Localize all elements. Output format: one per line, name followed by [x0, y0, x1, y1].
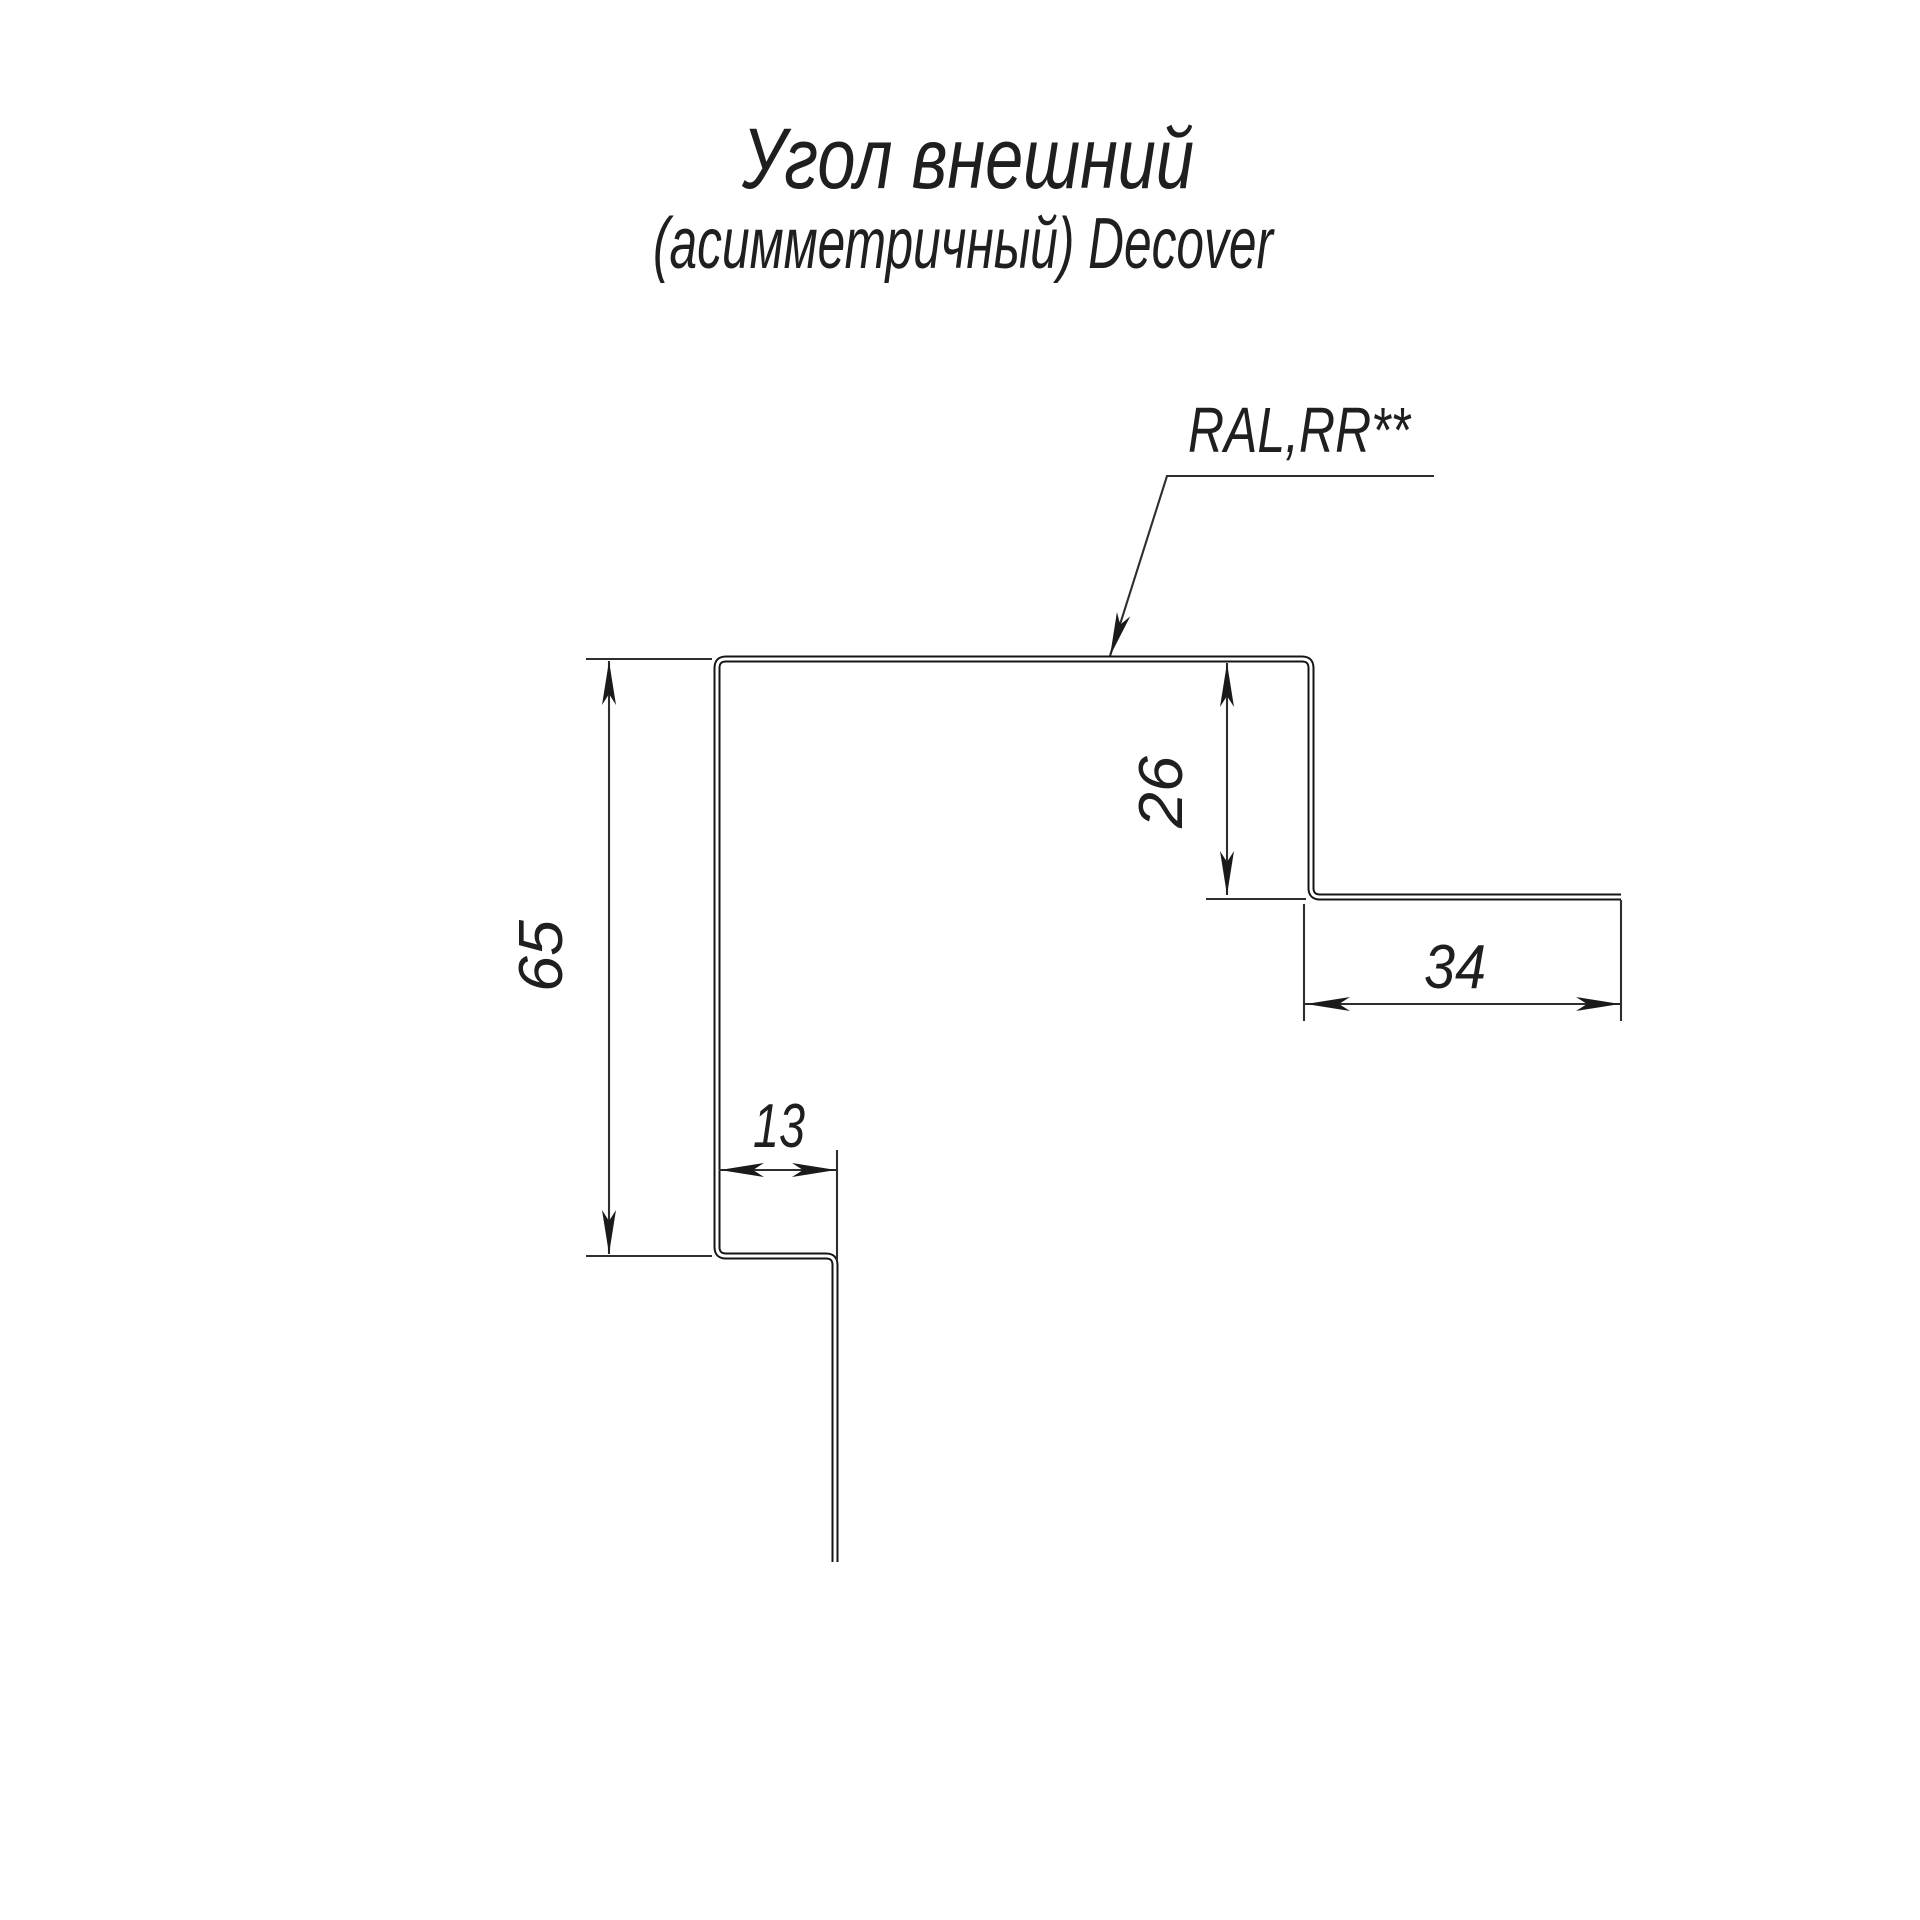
material-label: RAL,RR** [1188, 394, 1412, 466]
drawing-canvas: 65 13 26 34 [0, 0, 1920, 1920]
dimension-right-flange: 34 [1304, 900, 1621, 1021]
dimension-value-65: 65 [507, 919, 576, 992]
title-line-1: Угол внешний [741, 111, 1194, 207]
drawing-title: Угол внешний (асимметричный) Decover [653, 111, 1275, 284]
leader-line [1110, 476, 1434, 656]
title-line-2: (асимметричный) Decover [653, 204, 1275, 284]
dimension-value-26: 26 [1127, 755, 1196, 829]
dimension-right-step: 26 [1127, 663, 1306, 899]
technical-drawing: 65 13 26 34 [0, 0, 1920, 1920]
material-leader: RAL,RR** [1103, 394, 1434, 658]
dimension-bottom-step: 13 [719, 1092, 837, 1260]
dimension-left-height: 65 [507, 659, 712, 1256]
dimension-value-34: 34 [1424, 933, 1486, 1002]
leader-arrow [1103, 612, 1130, 658]
dimension-value-13: 13 [753, 1092, 805, 1161]
